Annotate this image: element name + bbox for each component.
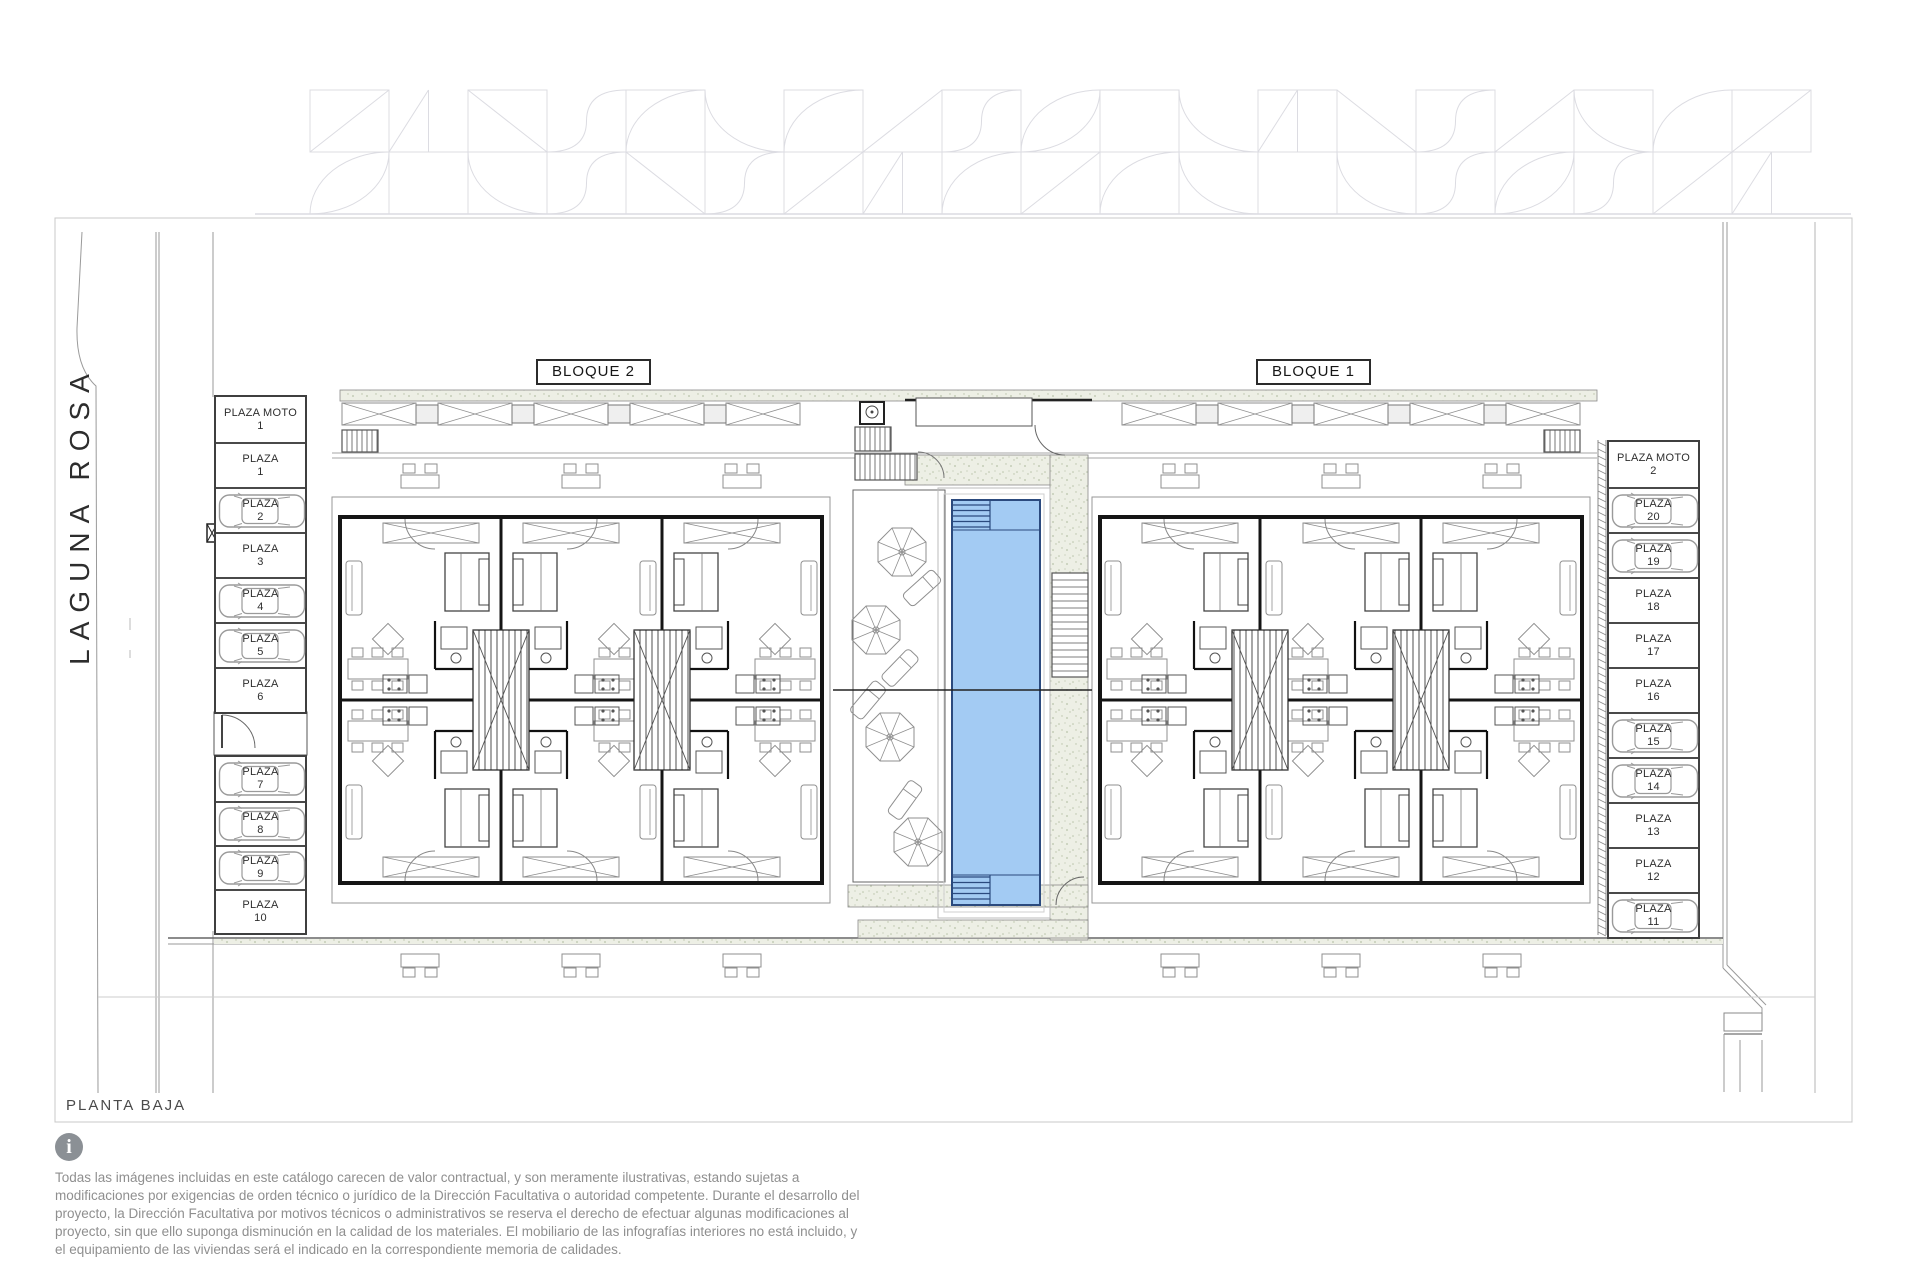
terrace-table-icon	[401, 464, 439, 488]
bloque-1	[1092, 403, 1590, 977]
parking-stall-label: PLAZA17	[1635, 633, 1671, 658]
terrace-table-icon	[562, 954, 600, 977]
parking-stall-label: PLAZA12	[1635, 858, 1671, 883]
parking-stall-label: PLAZA7	[242, 766, 278, 791]
terrace-table-icon	[1161, 464, 1199, 488]
stair-icon	[342, 430, 378, 452]
street-label: LAGUNA ROSA	[64, 365, 96, 665]
parking-stall-label: PLAZA8	[242, 811, 278, 836]
parking-stall: PLAZA4	[216, 577, 305, 622]
parking-stall: PLAZA2	[216, 487, 305, 532]
parking-stall-label: PLAZA19	[1635, 543, 1671, 568]
parking-stall: PLAZA15	[1609, 712, 1698, 757]
parking-stall: PLAZA6	[216, 667, 305, 712]
parking-stall-label: PLAZA4	[242, 588, 278, 613]
bloque-2	[332, 403, 830, 977]
parasol-icon	[894, 818, 942, 866]
parking-stall: PLAZA12	[1609, 847, 1698, 892]
disclaimer-block: i Todas las imágenes incluidas en este c…	[55, 1133, 860, 1259]
swimming-pool	[952, 500, 1040, 905]
parking-stall: PLAZA14	[1609, 757, 1698, 802]
floor-plan-title: PLANTA BAJA	[66, 1097, 186, 1114]
terrace-table-icon	[1483, 464, 1521, 488]
parking-stall: PLAZA9	[216, 845, 305, 889]
parking-stall-label: PLAZA20	[1635, 498, 1671, 523]
parking-stall-label: PLAZA9	[242, 855, 278, 880]
stair-icon	[1052, 573, 1088, 677]
parking-extras	[207, 440, 1692, 936]
parking-column-right: PLAZA MOTO2PLAZA20PLAZA19PLAZA18PLAZA17P…	[1607, 440, 1700, 939]
lounge-area	[853, 490, 945, 882]
parking-stall: PLAZA10	[216, 889, 305, 933]
terrace-table-icon	[1322, 464, 1360, 488]
parking-stall-label: PLAZA14	[1635, 768, 1671, 793]
parking-column-left-bottom: PLAZA7PLAZA8PLAZA9PLAZA10	[214, 755, 307, 935]
sun-lounger-icon	[902, 569, 942, 608]
parking-stall-label: PLAZA2	[242, 498, 278, 523]
terrace-table-icon	[723, 464, 761, 488]
block1-label: BLOQUE 1	[1256, 359, 1371, 385]
parking-stall-label: PLAZA16	[1635, 678, 1671, 703]
parasol-icon	[866, 713, 914, 761]
street-right	[1723, 222, 1815, 1093]
parking-stall-label: PLAZA5	[242, 633, 278, 658]
sun-lounger-icon	[887, 779, 923, 821]
parking-stall-label: PLAZA18	[1635, 588, 1671, 613]
block2-label: BLOQUE 2	[536, 359, 651, 385]
street-left	[77, 232, 213, 1093]
stair-icon	[634, 630, 690, 770]
decorative-frieze	[255, 90, 1851, 214]
parking-stall-label: PLAZA10	[242, 899, 278, 924]
terrace-table-icon	[401, 954, 439, 977]
parking-stall: PLAZA20	[1609, 487, 1698, 532]
parking-column-left-top: PLAZA MOTO1PLAZA1PLAZA2PLAZA3PLAZA4PLAZA…	[214, 395, 307, 714]
terrace-table-icon	[1161, 954, 1199, 977]
terrace-table-icon	[562, 464, 600, 488]
parking-stall-label: PLAZA13	[1635, 813, 1671, 838]
stair-icon	[473, 630, 529, 770]
parking-stall: PLAZA16	[1609, 667, 1698, 712]
info-icon: i	[55, 1133, 83, 1161]
parasol-icon	[852, 606, 900, 654]
parking-stall-label: PLAZA MOTO1	[224, 407, 297, 432]
parking-stall: PLAZA7	[216, 757, 305, 801]
parking-stall: PLAZA MOTO2	[1609, 442, 1698, 487]
floorplan-sheet: PLAZA MOTO1PLAZA1PLAZA2PLAZA3PLAZA4PLAZA…	[0, 0, 1920, 1280]
stair-icon	[855, 454, 917, 480]
parking-stall: PLAZA18	[1609, 577, 1698, 622]
stair-icon	[1544, 430, 1580, 452]
parking-stall-label: PLAZA11	[1635, 903, 1671, 928]
terrace-table-icon	[1483, 954, 1521, 977]
pool-courtyard	[833, 398, 1092, 940]
parking-stall: PLAZA5	[216, 622, 305, 667]
parking-stall-label: PLAZA6	[242, 678, 278, 703]
parking-stall: PLAZA3	[216, 532, 305, 577]
disclaimer-text: Todas las imágenes incluidas en este cat…	[55, 1169, 860, 1259]
parking-stall-label: PLAZA3	[242, 543, 278, 568]
terrace-table-icon	[1322, 954, 1360, 977]
parking-stall: PLAZA13	[1609, 802, 1698, 847]
parking-stall: PLAZA11	[1609, 892, 1698, 937]
terrace-table-icon	[723, 954, 761, 977]
parking-stall: PLAZA17	[1609, 622, 1698, 667]
parking-stall-label: PLAZA1	[242, 453, 278, 478]
parking-stall-label: PLAZA15	[1635, 723, 1671, 748]
sun-lounger-icon	[849, 680, 887, 721]
parking-stall: PLAZA19	[1609, 532, 1698, 577]
stair-icon	[1232, 630, 1288, 770]
stair-icon	[855, 427, 891, 451]
parking-stall: PLAZA1	[216, 442, 305, 487]
parking-stall-label: PLAZA MOTO2	[1617, 452, 1690, 477]
parking-stall: PLAZA8	[216, 801, 305, 845]
stair-icon	[1393, 630, 1449, 770]
parking-stall: PLAZA MOTO1	[216, 397, 305, 442]
parasol-icon	[878, 528, 926, 576]
